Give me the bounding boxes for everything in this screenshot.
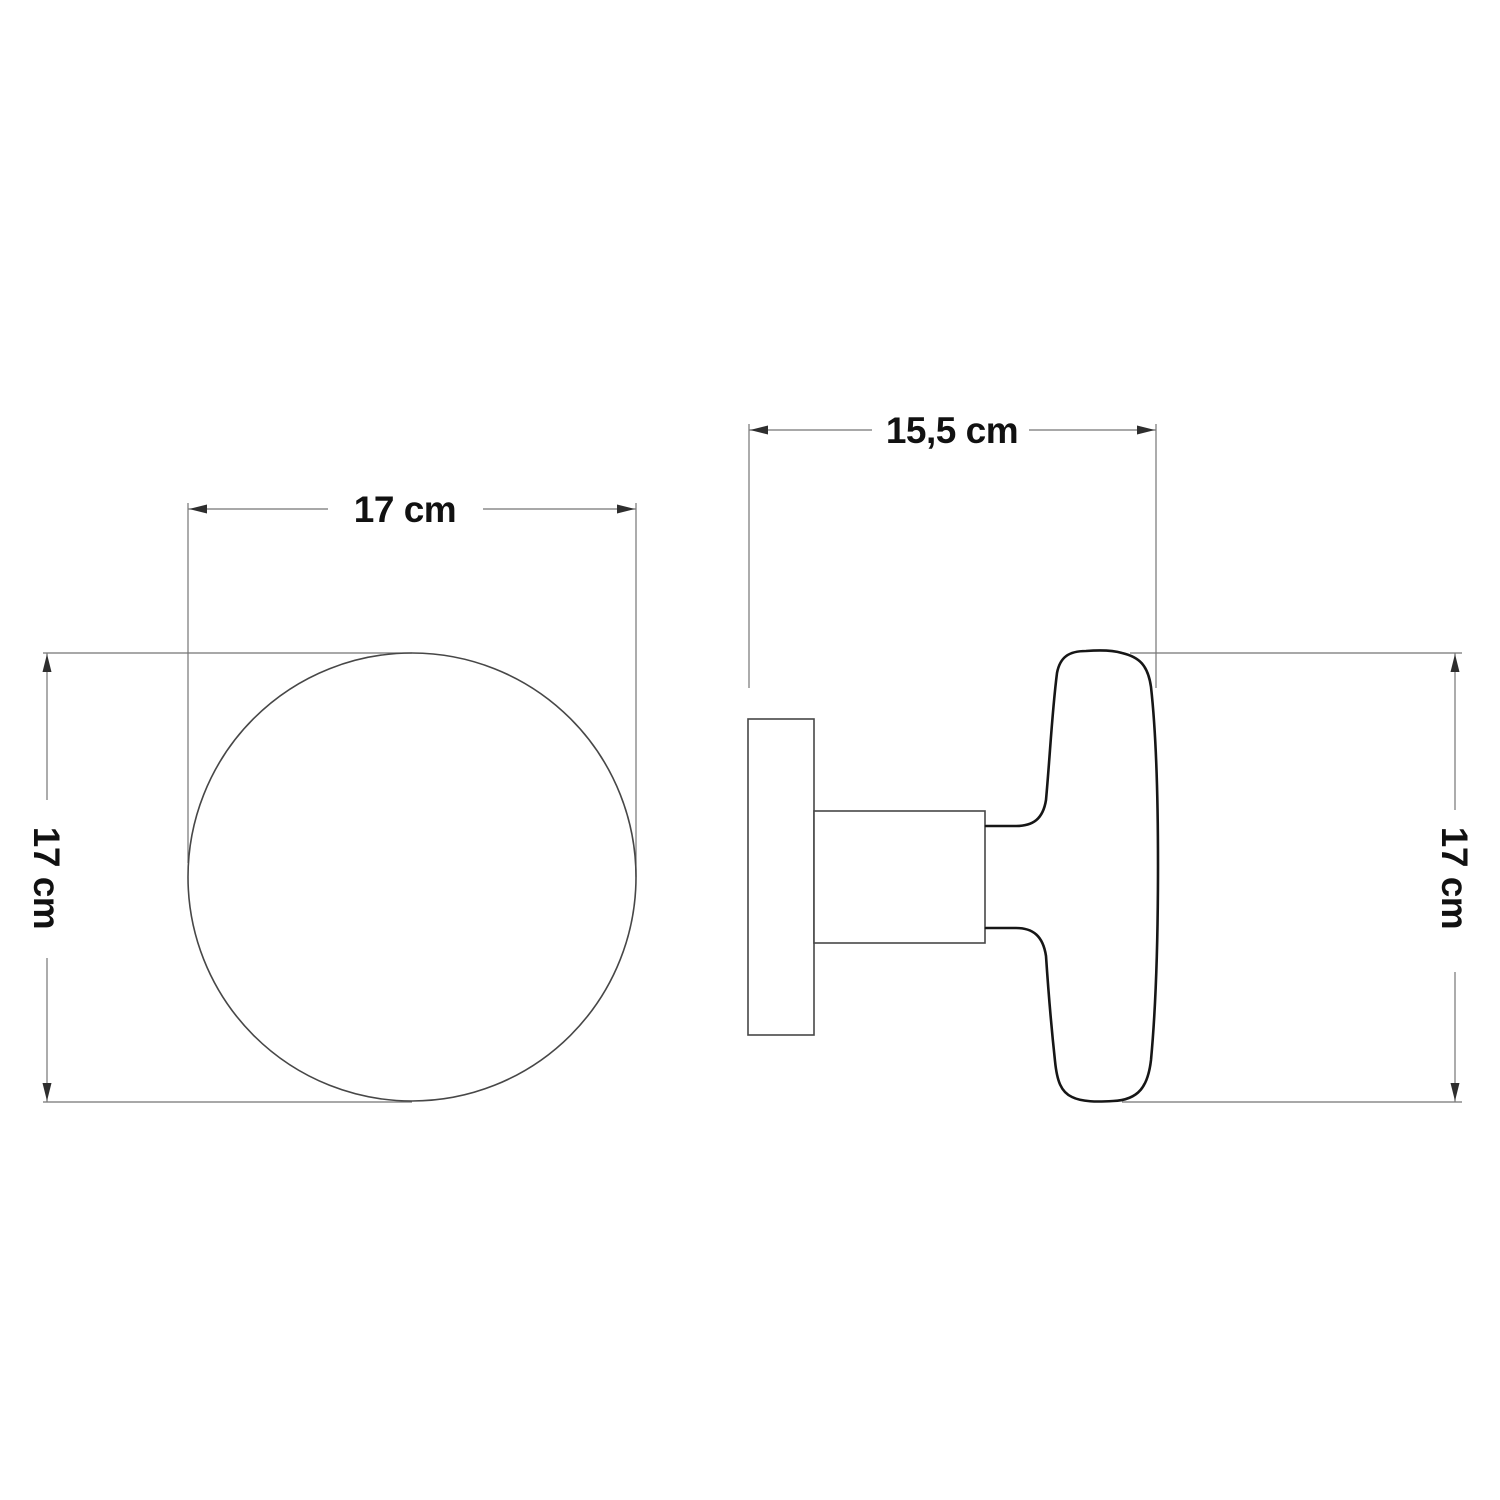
side-height-label: 17 cm [1434, 827, 1475, 929]
stem-outline [814, 811, 985, 943]
side-width-label: 15,5 cm [886, 410, 1018, 451]
technical-drawing-page: 17 cm 17 cm 15,5 cm 17 cm [0, 0, 1500, 1500]
dimension-drawing: 17 cm 17 cm 15,5 cm 17 cm [0, 0, 1500, 1500]
wall-plate-outline [748, 719, 814, 1035]
front-height-label: 17 cm [26, 827, 67, 929]
front-width-label: 17 cm [354, 489, 456, 530]
